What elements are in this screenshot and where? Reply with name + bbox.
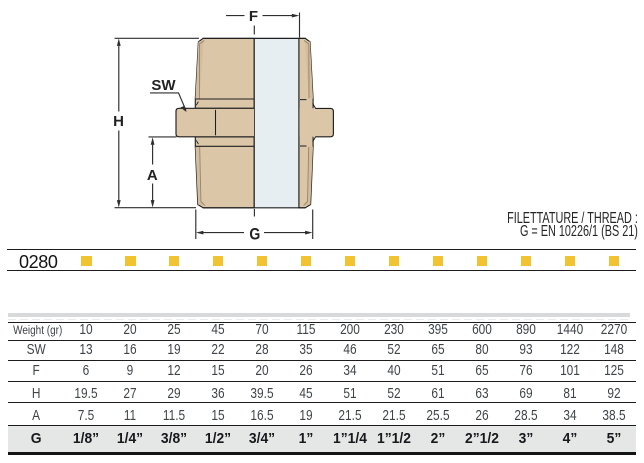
svg-text:G: G [249, 225, 260, 243]
svg-text:SW: SW [151, 77, 176, 94]
svg-text:A: A [147, 167, 158, 184]
svg-text:H: H [113, 113, 124, 130]
svg-text:F: F [249, 8, 258, 25]
